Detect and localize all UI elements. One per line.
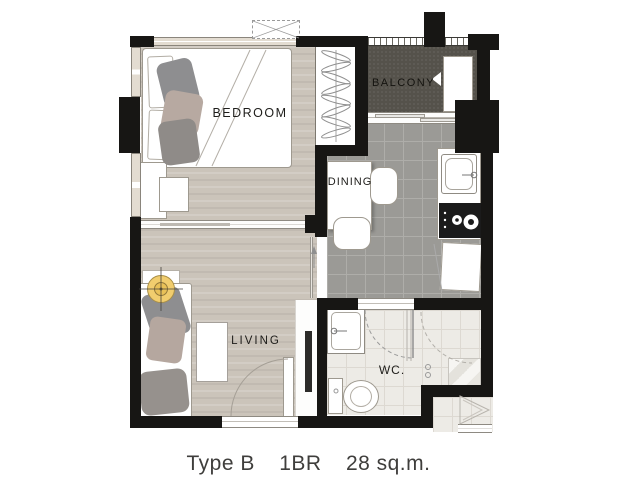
kitchen-sink-basin	[445, 158, 473, 190]
wall-segment	[481, 300, 493, 390]
structural-column	[119, 97, 140, 153]
wall-segment	[130, 416, 222, 428]
wall-segment	[305, 215, 319, 233]
plan-area: 28 sq.m.	[346, 452, 431, 476]
side-table	[196, 322, 228, 382]
wall-segment	[481, 153, 493, 300]
wall-segment	[317, 298, 358, 310]
desk-chair	[159, 177, 189, 212]
wall-segment	[468, 34, 499, 50]
refrigerator	[440, 242, 482, 292]
sliding-partition-panel	[160, 223, 230, 226]
bedroom-window-left	[131, 153, 141, 217]
ac-ledge	[252, 20, 300, 39]
sofa-cushion	[138, 368, 190, 417]
living-dining-threshold	[310, 237, 313, 298]
wall-segment	[317, 298, 327, 428]
entrance-threshold	[222, 416, 298, 428]
toilet-bowl-inner	[350, 386, 372, 407]
dining-label: DINING	[315, 176, 385, 188]
wc-label: WC.	[367, 363, 417, 377]
plan-type: Type B	[187, 452, 255, 476]
bedroom-window-left	[131, 47, 141, 97]
bed-cushion	[157, 118, 201, 167]
plan-caption: Type B 1BR 28 sq.m.	[0, 452, 617, 476]
wc-door-opening	[358, 298, 414, 310]
tv	[305, 331, 312, 392]
bedroom-label: BEDROOM	[205, 106, 295, 120]
wall-segment	[421, 385, 433, 428]
stove	[439, 203, 481, 238]
balcony-column	[424, 12, 445, 47]
balcony-railing	[368, 37, 424, 46]
toilet-tank	[328, 378, 343, 414]
entry-step	[458, 424, 492, 433]
wall-segment	[414, 298, 483, 310]
structural-column	[455, 100, 499, 153]
bathroom-sink-basin	[331, 312, 361, 350]
balcony-door-panel	[375, 114, 425, 118]
entrance-door-leaf	[283, 357, 294, 417]
living-label: LIVING	[216, 335, 296, 347]
wall-segment	[477, 50, 490, 100]
wall-segment	[130, 217, 141, 428]
wardrobe	[315, 44, 357, 146]
balcony-label: BALCONY	[361, 77, 446, 89]
plan-bedrooms: 1BR	[279, 452, 321, 476]
shower-drain	[448, 358, 481, 387]
wall-segment	[355, 36, 368, 148]
dining-chair	[333, 217, 371, 250]
floor-plan: BEDROOM BALCONY DINING LIVING WC. Type B…	[0, 0, 617, 500]
wall-segment	[130, 36, 154, 47]
sofa-cushion	[145, 316, 187, 365]
wall-segment	[315, 145, 368, 156]
